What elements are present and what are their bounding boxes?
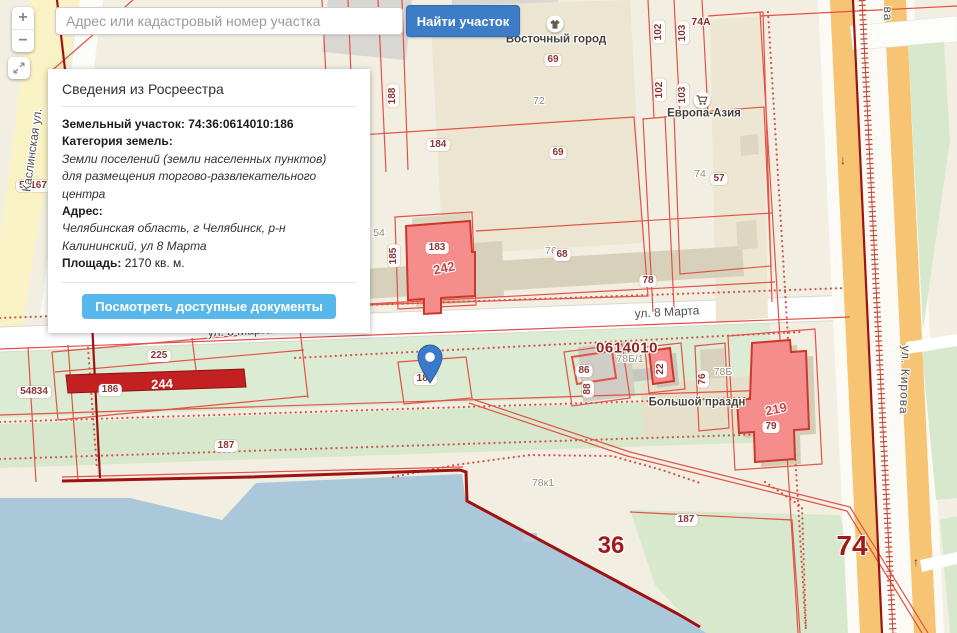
parcel-badge: 187: [215, 440, 238, 452]
rosreestr-info-panel: Сведения из Росреестра Земельный участок…: [48, 69, 370, 333]
oneway-arrow-icon: ↓: [840, 154, 846, 166]
parcel-badge: 54834: [17, 386, 51, 398]
zoom-controls: + −: [12, 7, 34, 52]
parcel-number: 54: [373, 228, 385, 239]
map-marker-pin[interactable]: [417, 344, 443, 384]
parcel-badge: 86: [575, 365, 592, 377]
parcel-badge: 183: [426, 242, 449, 254]
district-number: 36: [598, 534, 625, 558]
parcel-badge: 69: [549, 147, 566, 159]
building-number: 244: [151, 377, 173, 391]
street-name-kirova: ул. Кирова: [898, 345, 912, 415]
building-small-3: [736, 220, 758, 250]
parcel-number: 78к1: [532, 478, 554, 489]
parcel-badge: 184: [427, 139, 450, 151]
parcel-number: 72: [533, 96, 545, 107]
cadastral-quarter-number: 0614010: [596, 341, 658, 356]
category-value: Земли поселений (земли населенных пункто…: [62, 152, 326, 166]
parcel-badge: 187: [675, 514, 698, 526]
parcel-badge: 102: [654, 79, 666, 102]
parcel-badge: 185: [388, 245, 400, 268]
zoom-out-button[interactable]: −: [12, 30, 34, 52]
area-label: Площадь:: [62, 256, 121, 270]
parcel-badge: 79: [762, 421, 779, 433]
parcel-badge: 69: [544, 54, 561, 66]
parcel-badge: 68: [553, 249, 570, 261]
parcel-badge: 102: [653, 21, 665, 44]
house-number: 74А: [691, 17, 710, 28]
parcel-badge: 103: [677, 84, 689, 107]
parcel-badge: 188: [387, 85, 399, 108]
parcel-badge: 186: [99, 384, 122, 396]
category-label: Категория земель:: [62, 134, 173, 148]
panel-divider: [62, 282, 356, 283]
poi-label: Восточный город: [506, 34, 606, 46]
parcel-number: 74: [694, 169, 706, 180]
address-value: Челябинская область, г Челябинск, р-н Ка…: [62, 221, 286, 252]
parcel-badge: 88: [582, 380, 594, 397]
parcel-badge: 103: [677, 22, 689, 45]
usage-value: для размещения торгово-развлекательного …: [62, 169, 316, 200]
poi-label: Европа-Азия: [667, 108, 741, 120]
district-number: 74: [836, 532, 867, 560]
zoom-in-button[interactable]: +: [12, 7, 34, 30]
parcel-badge: 78: [639, 275, 656, 287]
fullscreen-button[interactable]: [8, 57, 30, 79]
parcel-badge: 57: [710, 173, 727, 185]
tshirt-icon: [547, 16, 564, 33]
parcel-badge: 22: [655, 360, 667, 377]
view-documents-button[interactable]: Посмотреть доступные документы: [82, 294, 336, 319]
panel-title: Сведения из Росреестра: [62, 81, 356, 107]
poi-label: Большой праздн: [649, 397, 746, 409]
area-value: 2170 кв. м.: [125, 256, 185, 270]
street-name-8marta: ул. 8 Марта: [634, 304, 699, 319]
find-parcel-button[interactable]: Найти участок: [406, 5, 520, 37]
building-small-2: [740, 134, 759, 156]
map-viewport[interactable]: 69 72 69 188 184 102 103 102 103 74А 74 …: [0, 0, 957, 633]
search-input[interactable]: [55, 7, 403, 35]
oneway-arrow-icon: ↑: [913, 556, 919, 568]
parcel-badge: 225: [148, 350, 171, 362]
expand-arrows-icon: [12, 61, 26, 75]
cart-icon: [694, 92, 711, 109]
street-name-kirova-fragment: ва: [882, 7, 894, 22]
building-small-1: [473, 241, 504, 299]
parcel-badge: 76: [697, 370, 709, 387]
address-label: Адрес:: [62, 204, 103, 218]
parcel-label: Земельный участок:: [62, 117, 185, 131]
parcel-number: 74:36:0614010:186: [188, 117, 293, 131]
parcel-number: 78Б: [714, 367, 733, 378]
